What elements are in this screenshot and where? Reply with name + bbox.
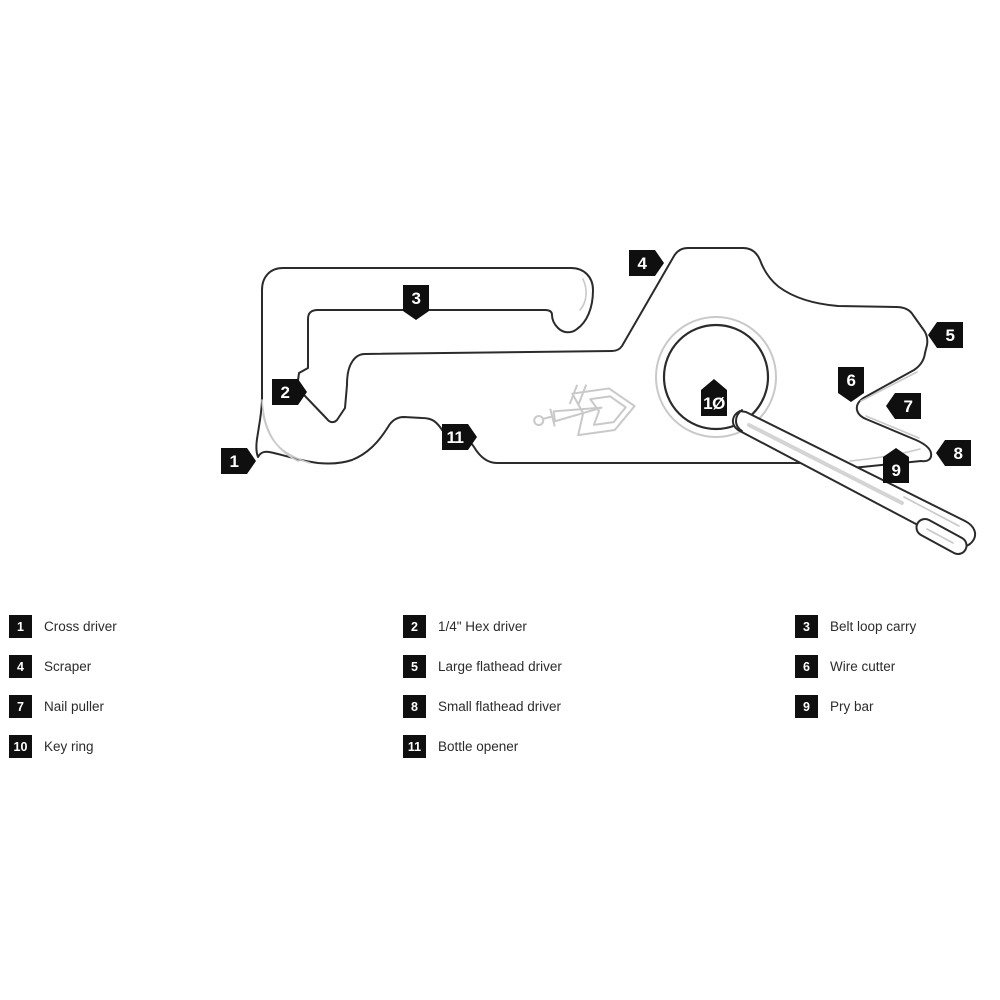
svg-text:2: 2 [281,383,290,402]
svg-text:8: 8 [954,444,963,463]
legend-item-hex-driver: 2 1/4" Hex driver [403,615,562,638]
svg-text:5: 5 [946,326,955,345]
marker-8-small-flathead: 8 [936,440,971,466]
tool-diagram: 1 2 3 4 5 6 7 8 [0,0,1000,600]
legend-item-scraper: 4 Scraper [9,655,117,678]
legend-badge: 5 [403,655,426,678]
legend-badge: 6 [795,655,818,678]
marker-1-cross-driver: 1 [221,448,256,474]
legend-badge: 7 [9,695,32,718]
legend-badge: 10 [9,735,32,758]
legend-badge: 2 [403,615,426,638]
legend-item-pry-bar: 9 Pry bar [795,695,916,718]
legend-label: Key ring [44,739,94,754]
legend-item-large-flathead: 5 Large flathead driver [403,655,562,678]
tool-body-outline [256,248,931,467]
legend-label: Belt loop carry [830,619,916,634]
legend: 1 Cross driver 4 Scraper 7 Nail puller 1… [0,615,1000,775]
legend-label: Cross driver [44,619,117,634]
legend-badge: 3 [795,615,818,638]
svg-text:7: 7 [904,397,913,416]
legend-label: Large flathead driver [438,659,562,674]
legend-item-bottle-opener: 11 Bottle opener [403,735,562,758]
legend-badge: 4 [9,655,32,678]
svg-text:11: 11 [447,428,464,447]
marker-5-large-flathead: 5 [928,322,963,348]
marker-3-belt-loop: 3 [403,285,429,320]
legend-item-nail-puller: 7 Nail puller [9,695,117,718]
legend-label: Small flathead driver [438,699,561,714]
svg-text:9: 9 [892,461,901,480]
multitool-feature-diagram: 1 2 3 4 5 6 7 8 [0,0,1000,1000]
svg-text:6: 6 [847,371,856,390]
legend-label: Pry bar [830,699,874,714]
legend-label: Scraper [44,659,91,674]
legend-item-key-ring: 10 Key ring [9,735,117,758]
legend-badge: 9 [795,695,818,718]
legend-column-1: 1 Cross driver 4 Scraper 7 Nail puller 1… [9,615,117,775]
legend-badge: 1 [9,615,32,638]
legend-item-wire-cutter: 6 Wire cutter [795,655,916,678]
svg-text:3: 3 [412,289,421,308]
legend-label: Bottle opener [438,739,518,754]
legend-item-belt-loop: 3 Belt loop carry [795,615,916,638]
svg-text:4: 4 [638,254,648,273]
legend-item-cross-driver: 1 Cross driver [9,615,117,638]
legend-item-small-flathead: 8 Small flathead driver [403,695,562,718]
legend-label: 1/4" Hex driver [438,619,527,634]
legend-label: Nail puller [44,699,104,714]
legend-column-2: 2 1/4" Hex driver 5 Large flathead drive… [403,615,562,775]
legend-badge: 8 [403,695,426,718]
svg-text:1Ø: 1Ø [703,394,725,413]
marker-4-scraper: 4 [629,250,664,276]
legend-column-3: 3 Belt loop carry 6 Wire cutter 9 Pry ba… [795,615,916,735]
svg-text:1: 1 [230,452,239,471]
legend-label: Wire cutter [830,659,895,674]
legend-badge: 11 [403,735,426,758]
marker-7-nail-puller: 7 [886,393,921,419]
